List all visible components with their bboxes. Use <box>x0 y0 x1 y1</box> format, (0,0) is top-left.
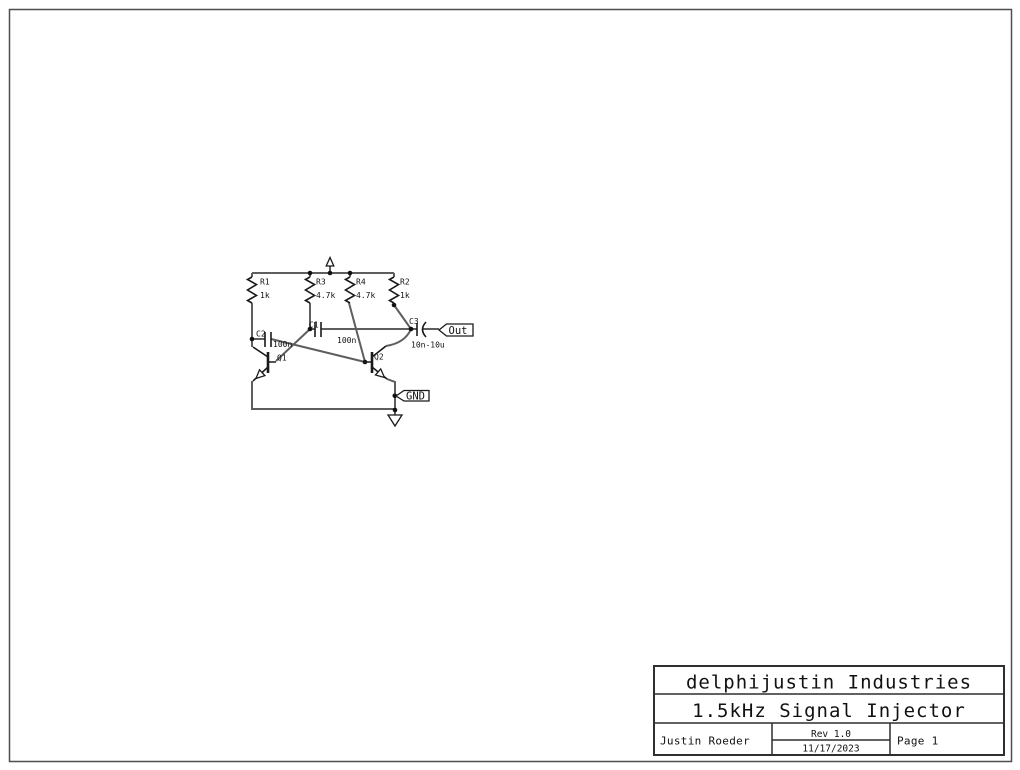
vcc-symbol <box>326 258 334 267</box>
schematic-canvas: R1 1k R3 4.7k R4 4.7k R2 1k C2 100n <box>0 0 1020 770</box>
r1-value-label: 1k <box>260 291 270 300</box>
r2-value-label: 1k <box>400 291 410 300</box>
revision-label: Rev 1.0 <box>811 729 851 740</box>
page-border <box>10 10 1012 762</box>
resistor-r2: R2 1k <box>390 277 410 303</box>
schematic-page: R1 1k R3 4.7k R4 4.7k R2 1k C2 100n <box>0 0 1020 770</box>
r3-value-label: 4.7k <box>316 291 335 300</box>
c1-value-label: 100n <box>337 336 356 345</box>
transistor-q1: Q1 <box>253 347 287 381</box>
transistor-q2: Q2 <box>364 346 387 381</box>
c2-ref-label: C2 <box>256 330 266 339</box>
capacitor-c1: C1 100n <box>309 321 356 346</box>
author-name: Justin Roeder <box>660 735 750 748</box>
q1-ref-label: Q1 <box>277 354 287 363</box>
page-number: Page 1 <box>897 735 939 748</box>
resistor-r3: R3 4.7k <box>306 277 336 303</box>
gnd-net-flag: GND <box>396 391 429 403</box>
resistor-r1: R1 1k <box>248 277 270 303</box>
r4-ref-label: R4 <box>356 278 366 287</box>
r2-ref-label: R2 <box>400 278 410 287</box>
ground-symbol <box>388 415 402 426</box>
c3-ref-label: C3 <box>409 317 419 326</box>
c2-value-label: 100n <box>273 340 292 349</box>
r4-value-label: 4.7k <box>356 291 375 300</box>
r1-ref-label: R1 <box>260 278 270 287</box>
r3-ref-label: R3 <box>316 278 326 287</box>
date-label: 11/17/2023 <box>802 744 859 755</box>
out-net-flag: Out <box>439 324 473 337</box>
capacitor-c3: C3 10n-10u <box>409 317 445 350</box>
title-block: delphijustin Industries 1.5kHz Signal In… <box>654 666 1004 755</box>
company-name: delphijustin Industries <box>686 672 972 694</box>
c3-value-label: 10n-10u <box>411 341 445 350</box>
q2-ref-label: Q2 <box>374 353 384 362</box>
schematic-title: 1.5kHz Signal Injector <box>692 700 966 722</box>
circuit-diagram: R1 1k R3 4.7k R4 4.7k R2 1k C2 100n <box>248 258 474 427</box>
out-flag-label: Out <box>449 325 468 337</box>
gnd-flag-label: GND <box>406 391 425 403</box>
resistor-r4: R4 4.7k <box>346 277 376 303</box>
c1-ref-label: C1 <box>309 321 319 330</box>
